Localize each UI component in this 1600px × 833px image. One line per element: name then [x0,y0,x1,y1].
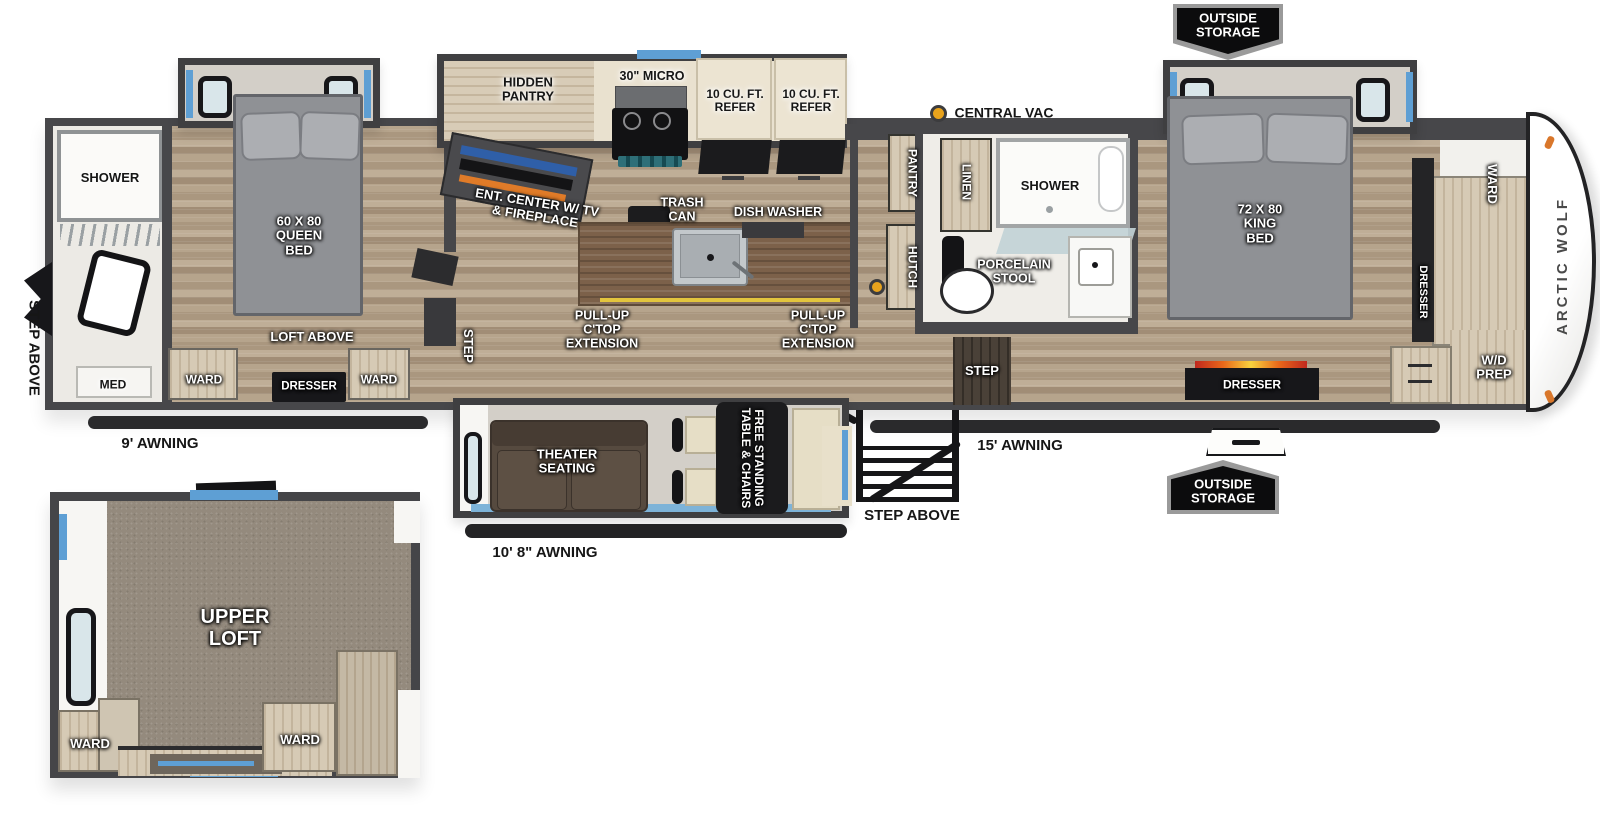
bath-sink-drain [1092,262,1098,268]
central-vac-label: CENTRAL VAC [954,105,1053,120]
porcelain-stool-label: PORCELAIN STOOL [977,258,1051,286]
king-window-right [1356,78,1390,122]
front-wardrobe [1432,176,1532,346]
queen-slide-accent-left [186,70,193,118]
wd-prep-label: W/D PREP [1476,354,1511,383]
loft-window-top [190,490,278,500]
kitchen-step-label: STEP [461,329,475,363]
rear-shower-label: SHOWER [81,171,140,185]
dining-chair-back-2 [672,470,683,504]
rear-awning-label: 9' AWNING [121,436,198,453]
living-slide-window [464,432,482,504]
drawer-handle-1 [1408,364,1432,367]
loft-tall-cabinet [336,650,398,776]
front-top-wall [1410,124,1532,140]
loft-corner-tr [394,501,420,543]
bedroom-ward-left-label: WARD [186,373,223,386]
front-ward-label: WARD [1485,164,1499,204]
burner-right [653,112,671,130]
refer-left-label: 10 CU. FT. REFER [706,88,763,114]
front-drawer-cabinet [1390,346,1452,404]
trash-can-label: TRASH CAN [660,196,703,224]
step-above-entry-label: STEP ABOVE [864,508,960,525]
queen-pillow-right [299,111,361,161]
drawer-handle-2 [1408,380,1432,383]
refer-right-handle [798,176,820,180]
oven-vent [618,156,682,167]
mid-awning-label: 10' 8" AWNING [492,545,597,562]
baggage-door-handle [1232,440,1260,445]
pantry-label: PANTRY [905,149,918,197]
dining-chair-seat-2 [685,468,717,506]
sink-drain [707,254,714,261]
bedroom-step-tread [424,298,456,346]
mid-bath-bottom-wall [915,322,1138,334]
mid-shower-seat [1098,146,1124,212]
central-vac-inlet-dot [869,279,885,295]
island-ctop-rail [600,298,840,302]
micro-label: 30" MICRO [620,70,685,84]
rear-awning-bar [88,416,428,429]
king-bed-label: 72 X 80 KING BED [1238,203,1283,246]
med-label: MED [100,378,127,391]
theater-sofa-back [492,422,646,446]
hidden-pantry-label: HIDDEN PANTRY [502,76,554,105]
king-dresser-label: DRESSER [1223,378,1281,391]
towel-bar [60,224,160,246]
floorplan-canvas: SHOWER MED 60 X 80 QUEEN BED LOFT ABOVE … [0,0,1600,833]
loft-accent-left [59,514,67,560]
king-pillow-right [1265,113,1349,166]
queen-bed-label: 60 X 80 QUEEN BED [276,215,322,258]
burner-left [623,112,641,130]
king-pillow-left [1181,113,1265,166]
upper-loft-label: UPPER LOFT [201,606,270,650]
central-vac-dot [930,105,947,122]
loft-stair-accent [158,761,254,766]
loft-ward-right-label: WARD [280,733,320,747]
hall-wall [850,132,858,328]
step-above-rear-label: STEP ABOVE [25,300,42,396]
dining-chair-back-1 [672,418,683,452]
ctop-right-label: PULL-UP C'TOP EXTENSION [782,309,854,350]
queen-slide-accent-right [364,70,371,118]
shower-drain-dot [1046,206,1053,213]
refer-left-handle [722,176,744,180]
entry-door [842,430,848,500]
front-awning-label: 15' AWNING [977,438,1063,455]
front-step-label: STEP [965,364,999,378]
theater-seating-label: THEATER SEATING [537,448,597,477]
dish-washer-label: DISH WASHER [734,206,822,220]
dining-chair-seat-1 [685,416,717,454]
bedroom-ward-right-label: WARD [361,373,398,386]
refer-left-lower [698,140,772,174]
front-dresser-side-label: DRESSER [1417,265,1429,318]
hutch-label: HUTCH [905,246,918,288]
ctop-left-label: PULL-UP C'TOP EXTENSION [566,309,638,350]
bedroom-dresser-label: DRESSER [281,381,337,394]
queen-window-left [198,76,232,118]
brand-logo: ARCTIC WOLF [1555,197,1572,335]
loft-ward-left-label: WARD [70,737,110,751]
dishwasher-panel [742,222,804,238]
refer-right-label: 10 CU. FT. REFER [782,88,839,114]
loft-window [66,608,96,706]
linen-label: LINEN [959,164,972,200]
loft-above-label: LOFT ABOVE [270,330,353,344]
dining-table-label: FREE STANDING TABLE & CHAIRS [739,408,765,508]
refer-right-lower [776,140,846,174]
king-slide-accent-right [1406,72,1413,122]
mid-awning-bar [465,524,847,538]
loft-corner-br [398,690,420,778]
queen-pillow-left [240,111,302,161]
kitchen-window [637,50,701,59]
outside-storage-top-label: OUTSIDE STORAGE [1196,12,1260,41]
mid-shower-label: SHOWER [1021,179,1080,193]
outside-storage-bottom-label: OUTSIDE STORAGE [1191,478,1255,507]
